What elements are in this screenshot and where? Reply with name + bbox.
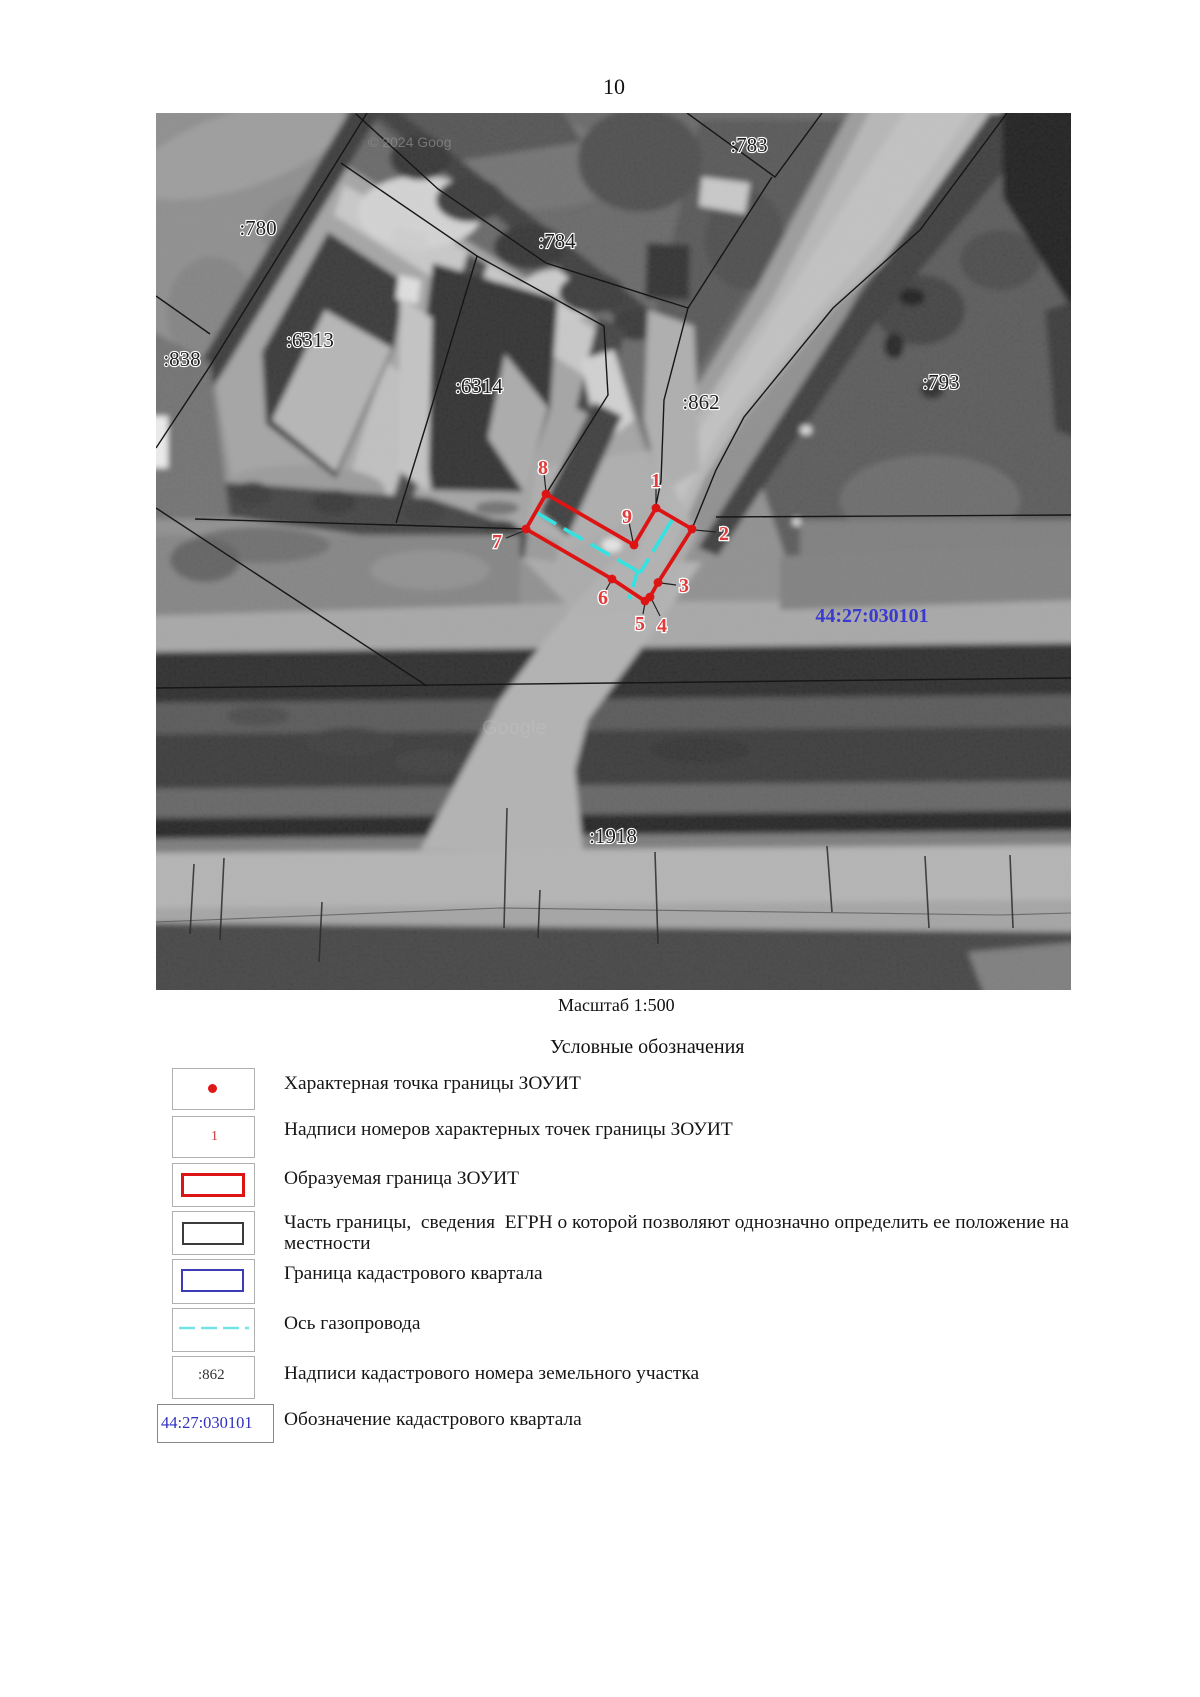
svg-text:44:27:030101: 44:27:030101 xyxy=(815,605,928,627)
svg-text:1: 1 xyxy=(651,470,661,492)
svg-text:5: 5 xyxy=(635,613,645,635)
svg-text::1918: :1918 xyxy=(589,824,637,848)
svg-text:Google: Google xyxy=(482,717,547,739)
svg-text::6313: :6313 xyxy=(286,328,334,352)
svg-text::862: :862 xyxy=(682,390,719,414)
svg-text::780: :780 xyxy=(239,216,276,240)
svg-text:3: 3 xyxy=(679,575,689,597)
svg-text:6: 6 xyxy=(598,587,608,609)
svg-text:© 2024 Goog: © 2024 Goog xyxy=(368,134,452,150)
svg-text::793: :793 xyxy=(922,370,959,394)
svg-text:4: 4 xyxy=(657,615,667,637)
svg-text:7: 7 xyxy=(492,531,502,553)
svg-text::784: :784 xyxy=(538,229,576,253)
svg-text:9: 9 xyxy=(622,506,632,528)
svg-text:8: 8 xyxy=(538,457,548,479)
svg-text::6314: :6314 xyxy=(455,374,503,398)
svg-text::838: :838 xyxy=(163,347,200,371)
svg-text::783: :783 xyxy=(730,133,767,157)
svg-text:2: 2 xyxy=(719,523,729,545)
